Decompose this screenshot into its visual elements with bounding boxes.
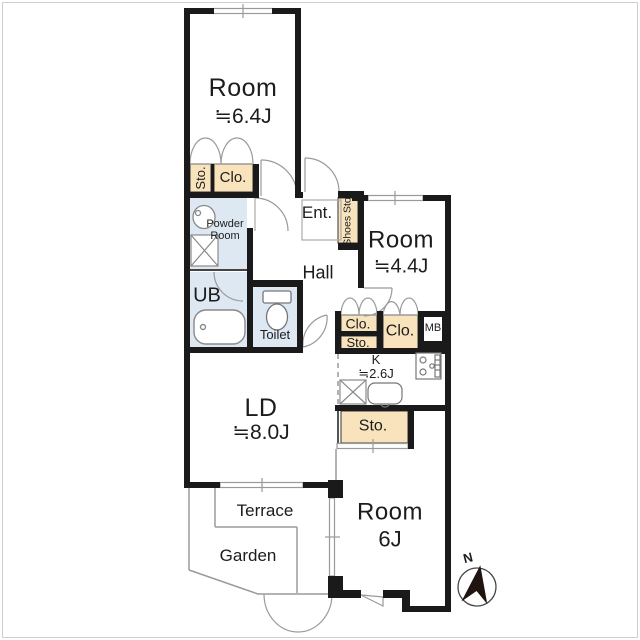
room-top-label: Room	[209, 75, 278, 101]
terrace-label: Terrace	[237, 502, 294, 520]
bathtub-icon	[194, 310, 245, 344]
toilet-label: Toilet	[260, 328, 290, 342]
storage-top-label: Sto.	[194, 166, 208, 189]
garden-label: Garden	[220, 547, 277, 565]
room-right-label: Room	[368, 227, 434, 252]
closet-top-label: Clo.	[220, 170, 247, 186]
room-bottom-label: Room	[357, 499, 423, 524]
kitchen-pan-icon	[340, 380, 366, 404]
room-right-size: ≒4.4J	[374, 257, 429, 278]
hall-label: Hall	[302, 264, 333, 283]
room-top-size: ≒6.4J	[214, 106, 271, 128]
living-dining-size: ≒8.0J	[232, 422, 289, 444]
kitchen-label: K	[372, 353, 381, 367]
storage-kitchen-label: Sto.	[359, 419, 387, 436]
room-bottom-size: 6J	[378, 527, 401, 550]
closet-b-label: Clo.	[386, 324, 414, 341]
floor-plan: Room ≒6.4J Sto. Clo. Powder Room UB Toil…	[0, 0, 640, 640]
kitchen-size: ≒2.6J	[358, 367, 393, 381]
unit-bath-label: UB	[193, 286, 221, 307]
entrance-label: Ent.	[302, 204, 332, 222]
floor-plan-drawing	[0, 0, 640, 640]
sink-icon	[368, 383, 402, 407]
stove-icon	[416, 353, 441, 379]
powder-room-label: Powder Room	[197, 218, 253, 242]
north-compass-icon	[456, 563, 498, 608]
living-dining-label: LD	[245, 395, 278, 421]
closet-a-label: Clo.	[346, 317, 371, 332]
shoes-storage-label: Shoes Sto.	[342, 194, 353, 245]
storage-a-label: Sto.	[346, 336, 369, 350]
meter-box-label: MB	[425, 323, 442, 335]
